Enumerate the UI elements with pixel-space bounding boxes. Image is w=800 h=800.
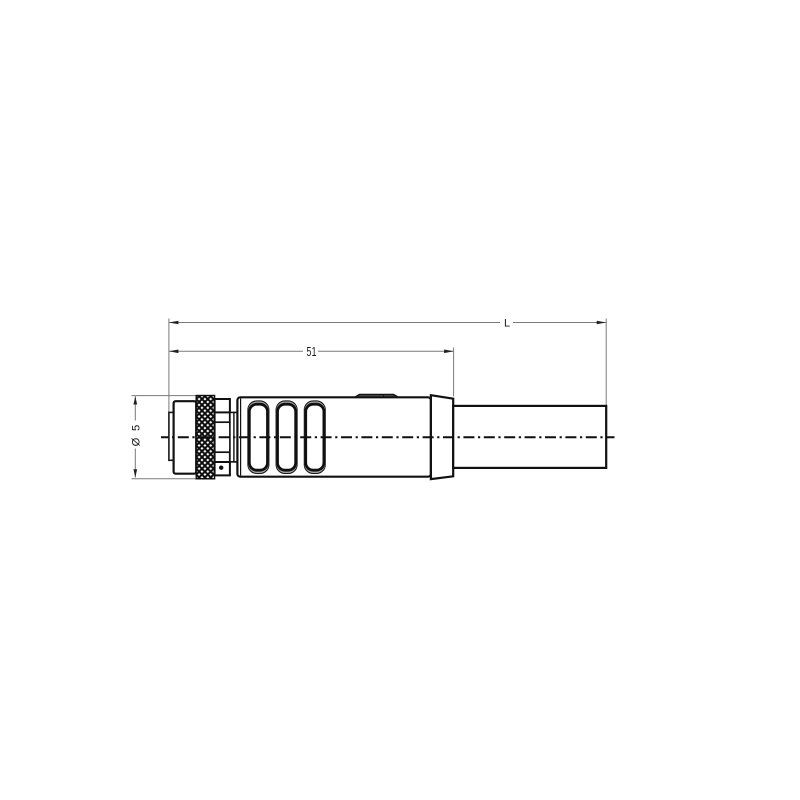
svg-text:L: L bbox=[504, 318, 510, 330]
svg-text:51: 51 bbox=[306, 345, 316, 359]
svg-text:Ø 5: Ø 5 bbox=[131, 423, 143, 446]
